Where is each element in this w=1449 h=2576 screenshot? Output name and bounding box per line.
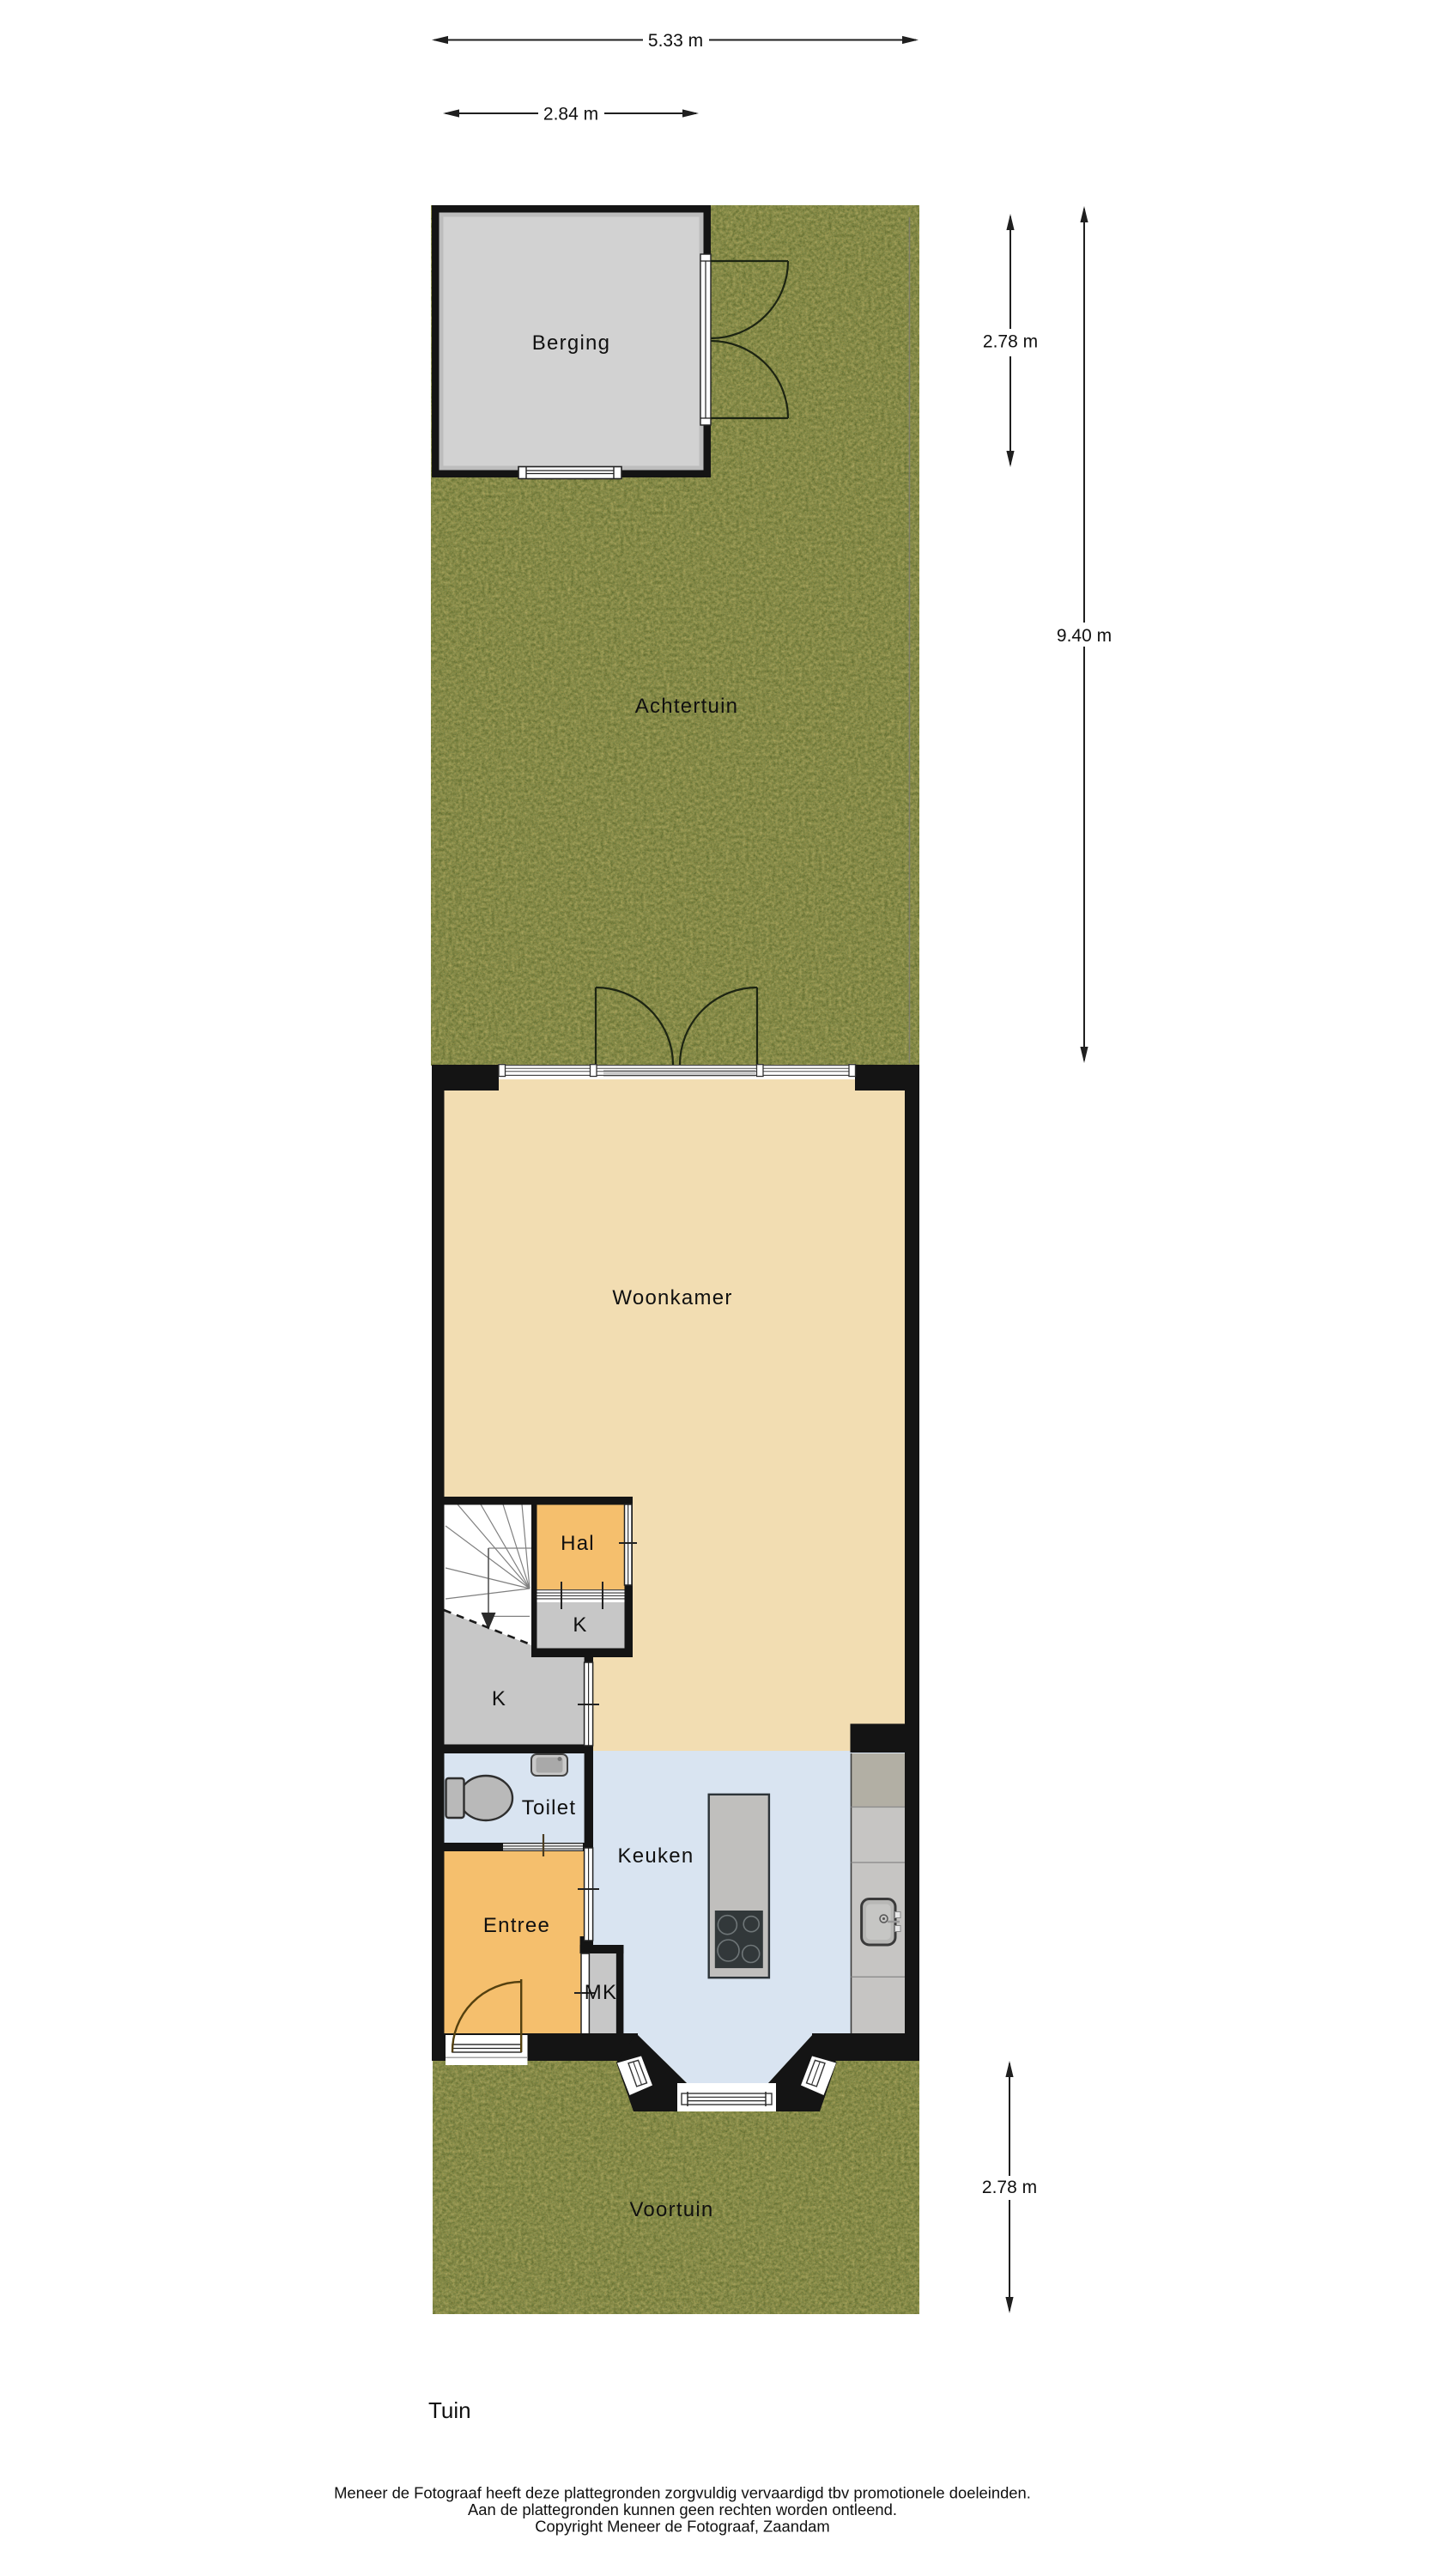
svg-text:Keuken: Keuken (618, 1844, 694, 1868)
svg-text:9.40 m: 9.40 m (1057, 626, 1112, 646)
svg-text:Berging: Berging (532, 331, 610, 355)
svg-text:2.84 m: 2.84 m (543, 105, 598, 125)
svg-text:MK: MK (585, 1981, 618, 2004)
svg-text:Achtertuin: Achtertuin (635, 695, 739, 718)
svg-text:Entree: Entree (483, 1914, 550, 1937)
svg-text:Toilet: Toilet (522, 1796, 577, 1820)
svg-text:Copyright Meneer de Fotograaf,: Copyright Meneer de Fotograaf, Zaandam (535, 2518, 829, 2536)
svg-text:K: K (573, 1613, 587, 1637)
svg-text:2.78 m: 2.78 m (982, 2178, 1037, 2197)
svg-text:Woonkamer: Woonkamer (612, 1286, 732, 1309)
svg-text:5.33 m: 5.33 m (648, 31, 703, 51)
svg-text:Meneer de Fotograaf heeft deze: Meneer de Fotograaf heeft deze plattegro… (334, 2484, 1031, 2502)
svg-text:Tuin: Tuin (428, 2397, 471, 2423)
svg-text:Hal: Hal (561, 1532, 595, 1555)
svg-text:Aan de plattegronden kunnen ge: Aan de plattegronden kunnen geen rechten… (468, 2500, 897, 2518)
svg-text:2.78 m: 2.78 m (983, 332, 1038, 352)
svg-text:Voortuin: Voortuin (629, 2198, 713, 2221)
svg-text:K: K (492, 1687, 506, 1710)
